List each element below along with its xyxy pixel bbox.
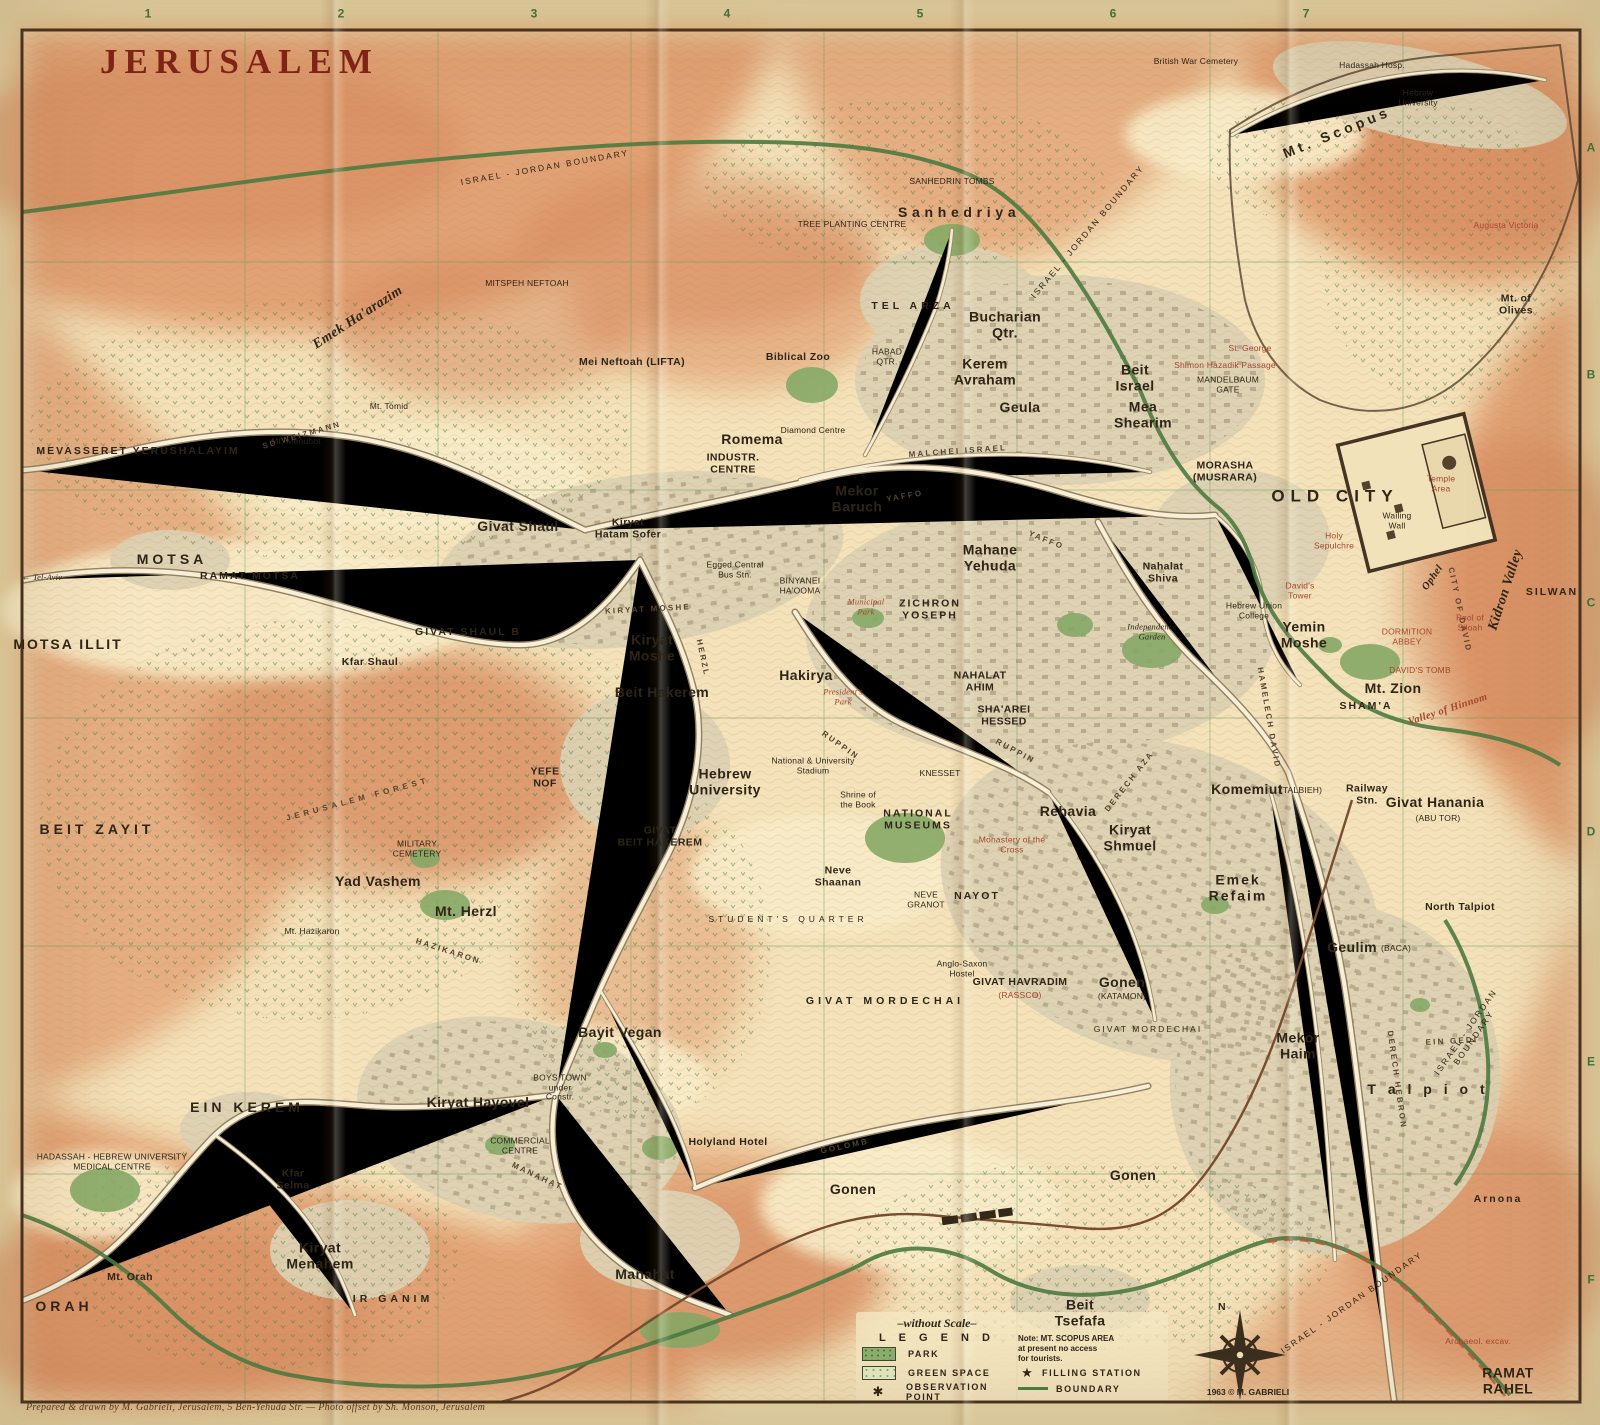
map-title: JERUSALEM — [100, 42, 379, 82]
filling-station-icon: ★ — [1018, 1365, 1036, 1381]
map-canvas: .o{stroke:#93805f;stroke-width:7;fill:no… — [0, 0, 1600, 1425]
legend-label: FILLING STATION — [1042, 1368, 1142, 1378]
legend-title: L E G E N D — [862, 1332, 1012, 1344]
map-legend-right: Note: MT. SCOPUS AREA at present no acce… — [1018, 1334, 1158, 1396]
legend-item-boundary: BOUNDARY — [1018, 1381, 1158, 1396]
green-space-swatch — [862, 1366, 896, 1380]
scale-note: –without Scale– — [862, 1316, 1012, 1331]
map-legend: –without Scale– L E G E N D PARK GREEN S… — [862, 1316, 1012, 1401]
boundary-swatch — [1018, 1387, 1048, 1390]
legend-item-green-space: GREEN SPACE — [862, 1364, 1012, 1382]
legend-label: GREEN SPACE — [908, 1368, 990, 1378]
observation-point-icon: ✱ — [862, 1384, 894, 1400]
scopus-note: Note: MT. SCOPUS AREA at present no acce… — [1018, 1334, 1158, 1364]
legend-label: OBSERVATION POINT — [906, 1382, 1012, 1402]
legend-label: PARK — [908, 1349, 939, 1359]
legend-item-observation-point: ✱ OBSERVATION POINT — [862, 1383, 1012, 1401]
copyright: 1963 © M. GABRIELI — [1207, 1387, 1289, 1397]
legend-item-park: PARK — [862, 1345, 1012, 1363]
attribution: Prepared & drawn by M. Gabrieli, Jerusal… — [26, 1402, 485, 1413]
legend-label: BOUNDARY — [1056, 1384, 1120, 1394]
legend-item-filling-station: ★ FILLING STATION — [1018, 1365, 1158, 1380]
map-sheet: .o{stroke:#93805f;stroke-width:7;fill:no… — [0, 0, 1600, 1425]
park-swatch — [862, 1347, 896, 1361]
